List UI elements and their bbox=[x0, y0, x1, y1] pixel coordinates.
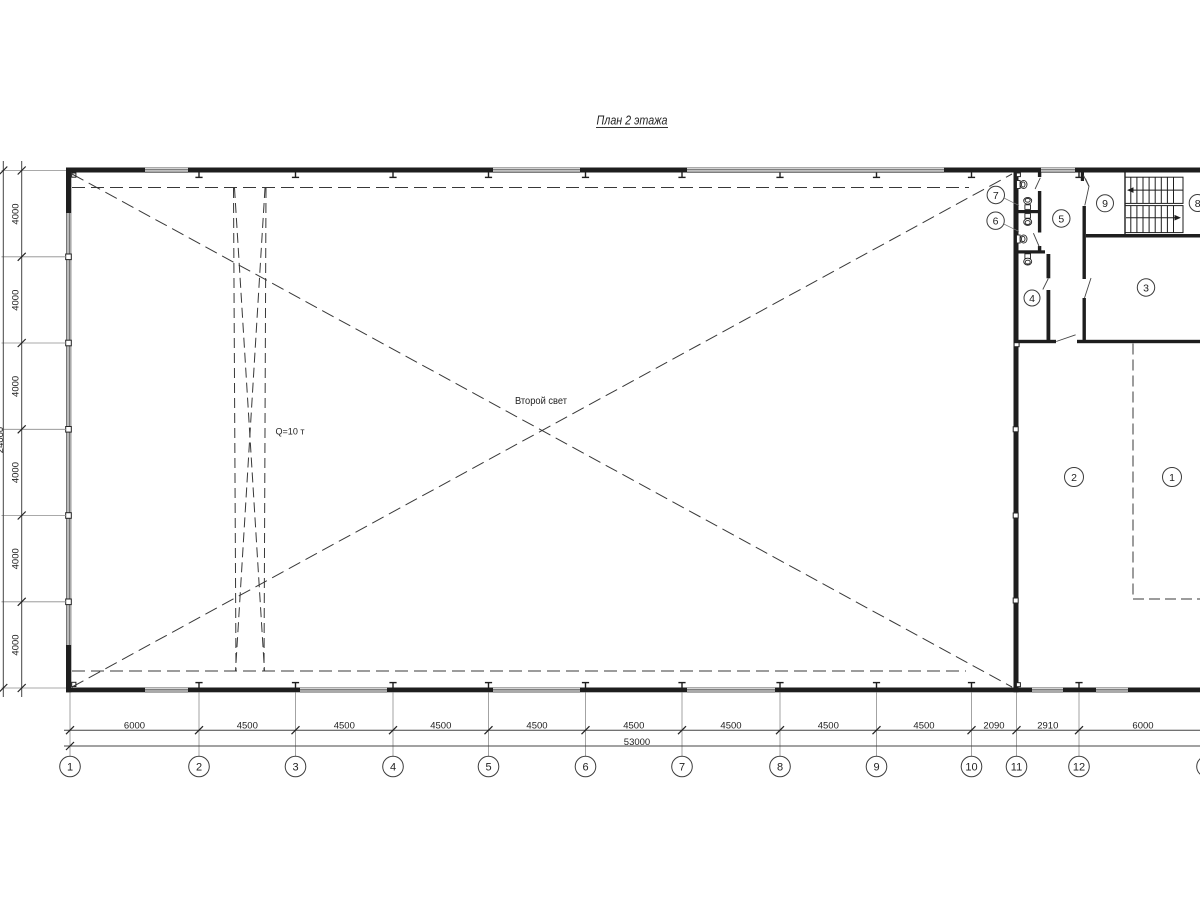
svg-text:4500: 4500 bbox=[334, 721, 355, 732]
svg-text:4500: 4500 bbox=[526, 721, 547, 732]
svg-text:2090: 2090 bbox=[983, 721, 1004, 732]
svg-text:2910: 2910 bbox=[1037, 721, 1058, 732]
svg-text:8: 8 bbox=[777, 761, 783, 773]
svg-text:Второй свет: Второй свет bbox=[515, 395, 567, 407]
svg-text:4500: 4500 bbox=[623, 721, 644, 732]
svg-text:4500: 4500 bbox=[913, 721, 934, 732]
svg-text:6000: 6000 bbox=[124, 721, 145, 732]
svg-text:4000: 4000 bbox=[11, 376, 22, 397]
svg-text:10: 10 bbox=[965, 761, 977, 773]
svg-text:4000: 4000 bbox=[11, 290, 22, 311]
svg-text:8: 8 bbox=[1195, 198, 1200, 210]
svg-text:11: 11 bbox=[1011, 761, 1022, 773]
svg-text:9: 9 bbox=[873, 761, 879, 773]
svg-text:6000: 6000 bbox=[1132, 721, 1153, 732]
svg-text:3: 3 bbox=[292, 761, 298, 773]
svg-text:24000: 24000 bbox=[0, 427, 6, 453]
svg-text:4000: 4000 bbox=[11, 462, 22, 483]
svg-text:6: 6 bbox=[582, 761, 588, 773]
svg-text:4000: 4000 bbox=[11, 203, 22, 224]
svg-text:4500: 4500 bbox=[818, 721, 839, 732]
svg-text:4000: 4000 bbox=[11, 548, 22, 569]
svg-text:2: 2 bbox=[1071, 472, 1077, 484]
svg-text:5: 5 bbox=[1058, 213, 1064, 225]
svg-text:7: 7 bbox=[993, 190, 999, 202]
svg-text:4000: 4000 bbox=[11, 634, 22, 655]
svg-text:6: 6 bbox=[993, 216, 999, 228]
svg-text:4500: 4500 bbox=[237, 721, 258, 732]
svg-text:План 2 этажа: План 2 этажа bbox=[597, 114, 668, 128]
svg-text:9: 9 bbox=[1102, 198, 1108, 210]
svg-text:1: 1 bbox=[1169, 472, 1175, 484]
svg-text:7: 7 bbox=[679, 761, 685, 773]
svg-text:1: 1 bbox=[67, 761, 73, 773]
svg-text:4500: 4500 bbox=[430, 721, 451, 732]
svg-text:4500: 4500 bbox=[720, 721, 741, 732]
svg-text:12: 12 bbox=[1073, 761, 1085, 773]
svg-text:2: 2 bbox=[196, 761, 202, 773]
svg-text:53000: 53000 bbox=[624, 737, 650, 748]
svg-text:4: 4 bbox=[390, 761, 396, 773]
svg-text:4: 4 bbox=[1029, 293, 1035, 305]
svg-text:Q=10 т: Q=10 т bbox=[276, 427, 306, 438]
svg-text:3: 3 bbox=[1143, 282, 1149, 294]
svg-text:5: 5 bbox=[485, 761, 491, 773]
